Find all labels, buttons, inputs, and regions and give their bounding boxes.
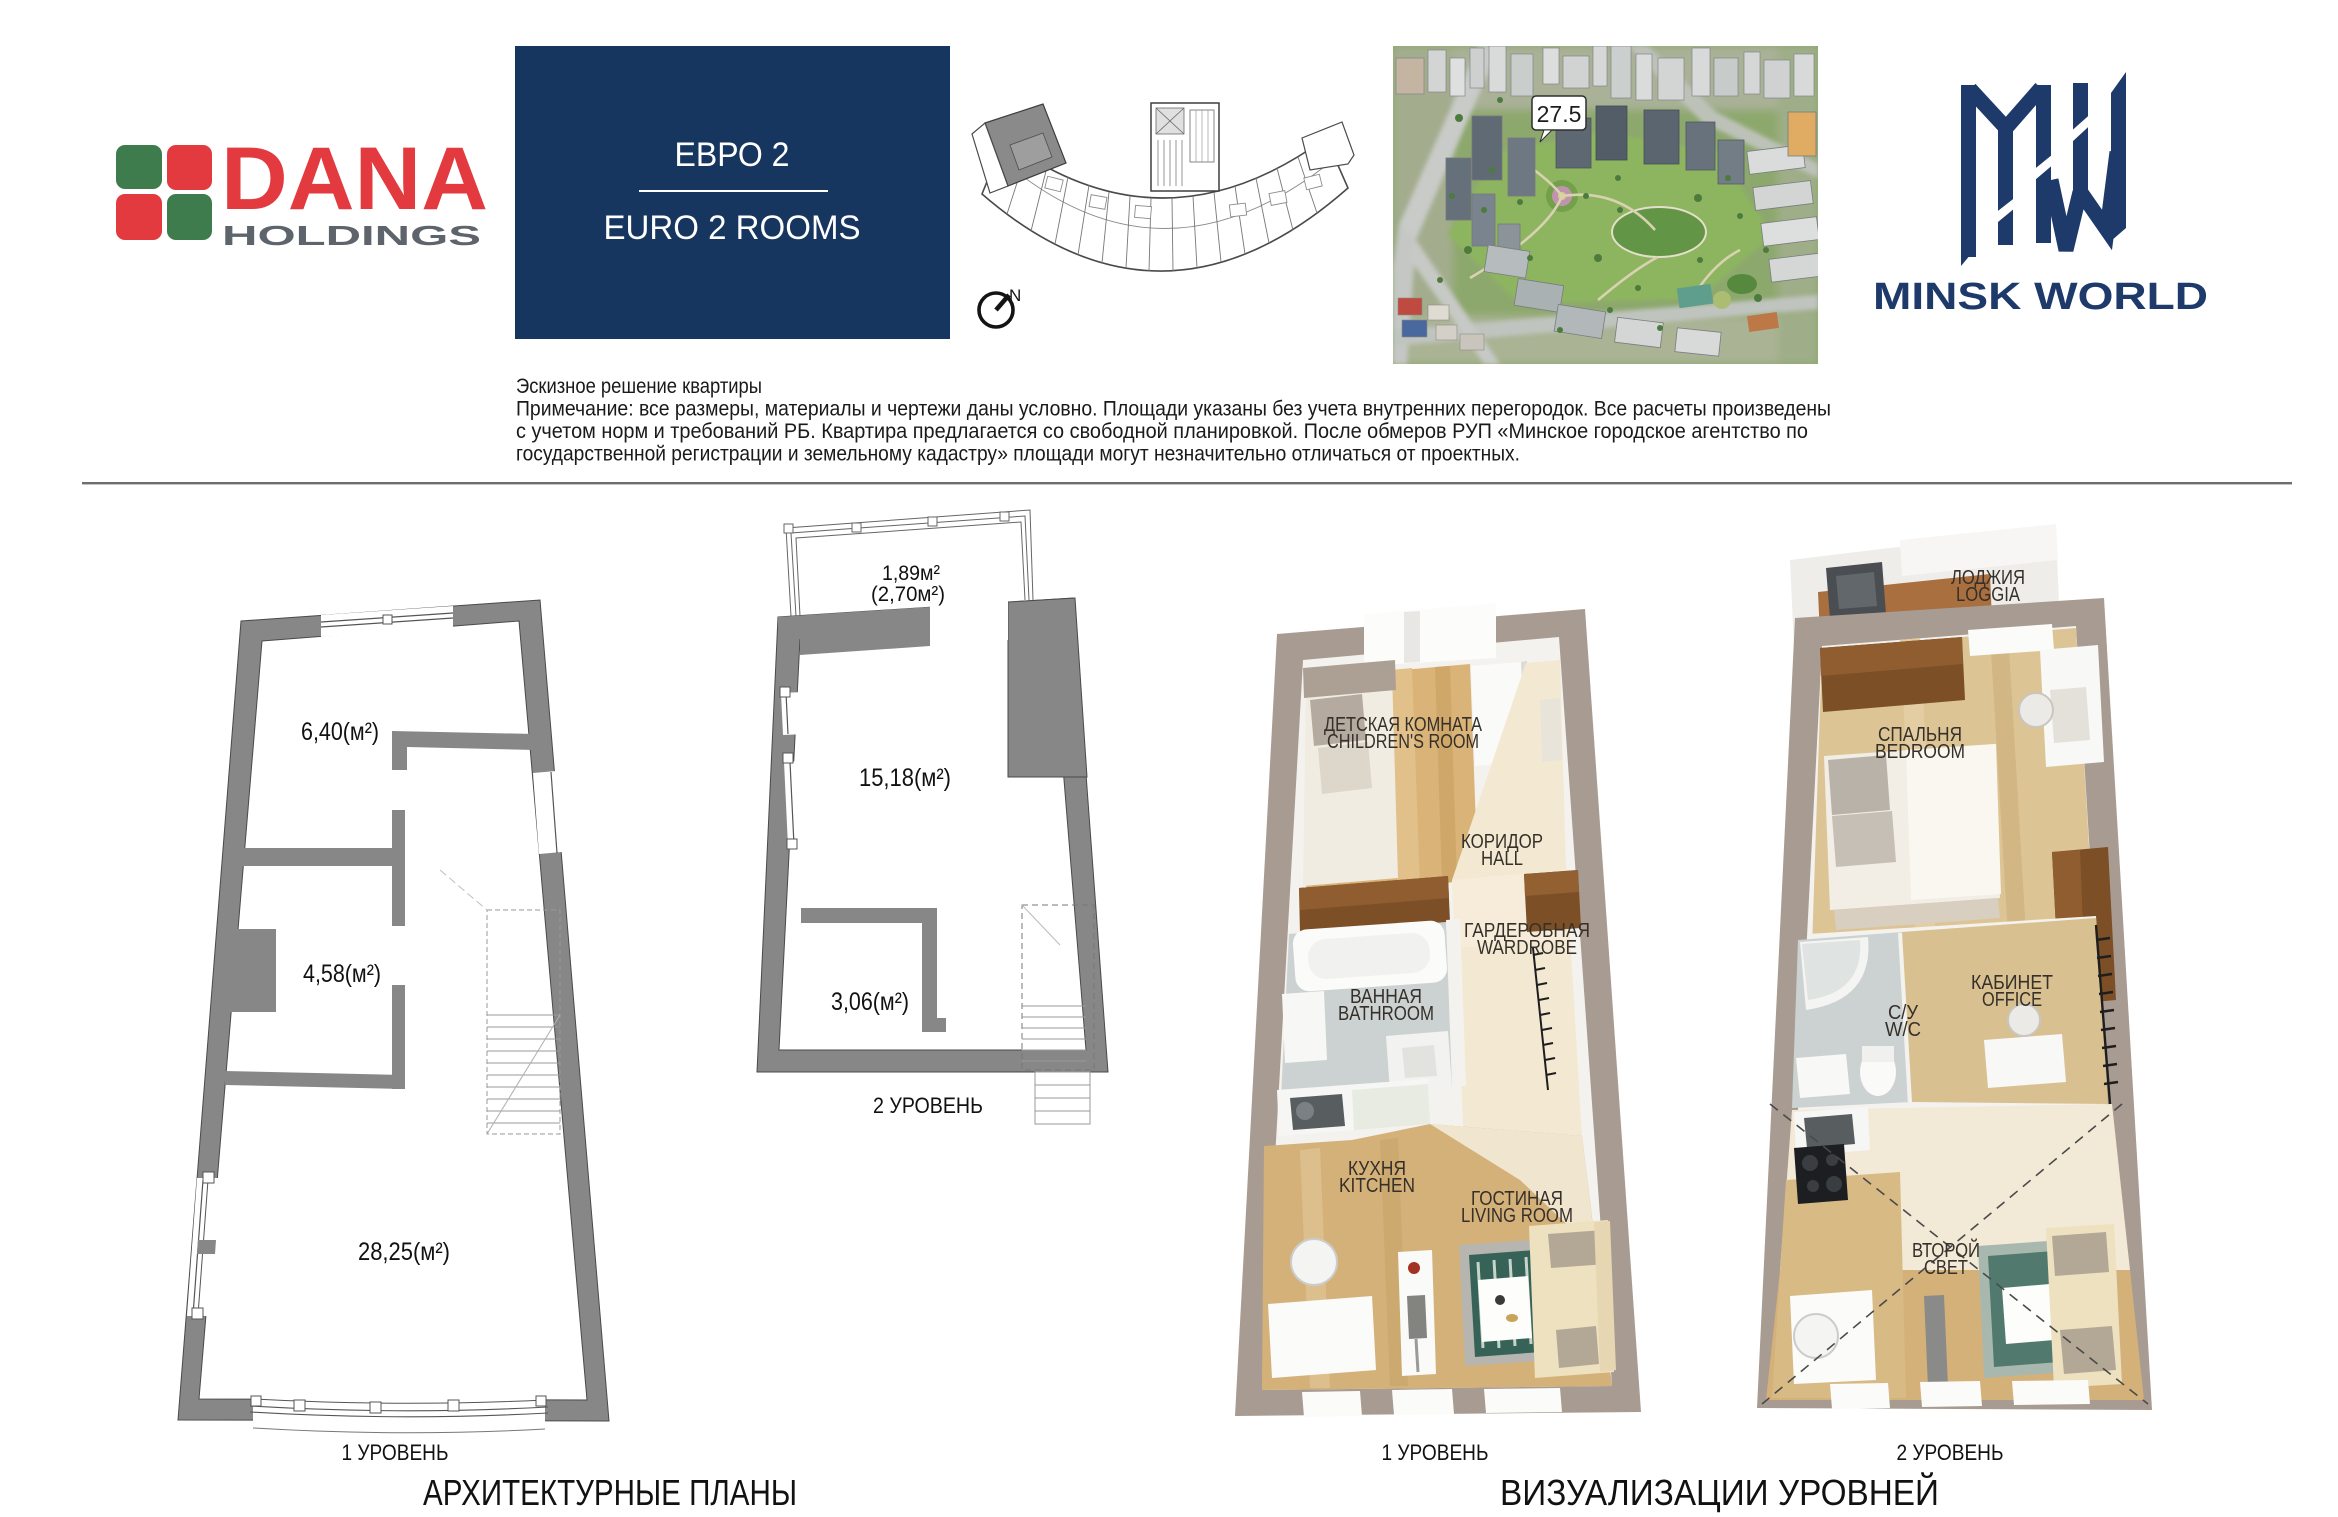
- svg-text:OFFICE: OFFICE: [1982, 989, 2042, 1011]
- svg-text:4,58(м²): 4,58(м²): [303, 960, 381, 988]
- svg-text:АРХИТЕКТУРНЫЕ ПЛАНЫ: АРХИТЕКТУРНЫЕ ПЛАНЫ: [423, 1472, 797, 1513]
- svg-text:27.5: 27.5: [1537, 101, 1582, 127]
- svg-text:государственной регистрации и: государственной регистрации и земельному…: [516, 443, 1520, 466]
- svg-text:WARDROBE: WARDROBE: [1477, 937, 1577, 959]
- svg-text:3,06(м²): 3,06(м²): [831, 988, 909, 1016]
- svg-text:1,89м²: 1,89м²: [882, 562, 940, 585]
- svg-text:N: N: [1009, 286, 1021, 305]
- svg-text:MINSK WORLD: MINSK WORLD: [1873, 276, 2208, 318]
- svg-text:W/C: W/C: [1885, 1019, 1921, 1041]
- svg-text:CHILDREN'S ROOM: CHILDREN'S ROOM: [1327, 731, 1479, 753]
- svg-text:СВЕТ: СВЕТ: [1924, 1257, 1968, 1279]
- svg-text:BEDROOM: BEDROOM: [1875, 741, 1965, 763]
- svg-text:15,18(м²): 15,18(м²): [859, 764, 951, 792]
- svg-text:1 УРОВЕНЬ: 1 УРОВЕНЬ: [342, 1440, 449, 1465]
- svg-text:ВИЗУАЛИЗАЦИИ УРОВНЕЙ: ВИЗУАЛИЗАЦИИ УРОВНЕЙ: [1500, 1471, 1939, 1513]
- svg-text:KITCHEN: KITCHEN: [1339, 1175, 1415, 1197]
- svg-text:BATHROOM: BATHROOM: [1338, 1003, 1434, 1025]
- svg-text:6,40(м²): 6,40(м²): [301, 718, 379, 746]
- svg-text:DANA: DANA: [221, 128, 488, 228]
- svg-text:Эскизное решение квартиры: Эскизное решение квартиры: [516, 375, 762, 398]
- svg-text:Примечание: все размеры, матер: Примечание: все размеры, материалы и чер…: [516, 398, 1831, 421]
- svg-text:LIVING ROOM: LIVING ROOM: [1461, 1205, 1573, 1227]
- svg-text:2 УРОВЕНЬ: 2 УРОВЕНЬ: [1897, 1440, 2004, 1465]
- svg-text:(2,70м²): (2,70м²): [871, 583, 945, 606]
- svg-text:HOLDINGS: HOLDINGS: [222, 220, 481, 251]
- svg-text:с учетом норм и требований РБ.: с учетом норм и требований РБ. Квартира …: [516, 420, 1808, 443]
- svg-text:ЕВРО 2: ЕВРО 2: [675, 136, 790, 174]
- svg-text:2 УРОВЕНЬ: 2 УРОВЕНЬ: [873, 1093, 983, 1118]
- svg-text:LOGGIA: LOGGIA: [1956, 584, 2021, 606]
- svg-text:28,25(м²): 28,25(м²): [358, 1238, 450, 1266]
- svg-text:HALL: HALL: [1481, 848, 1523, 870]
- svg-text:1 УРОВЕНЬ: 1 УРОВЕНЬ: [1382, 1440, 1489, 1465]
- svg-text:EURO 2 ROOMS: EURO 2 ROOMS: [604, 209, 861, 247]
